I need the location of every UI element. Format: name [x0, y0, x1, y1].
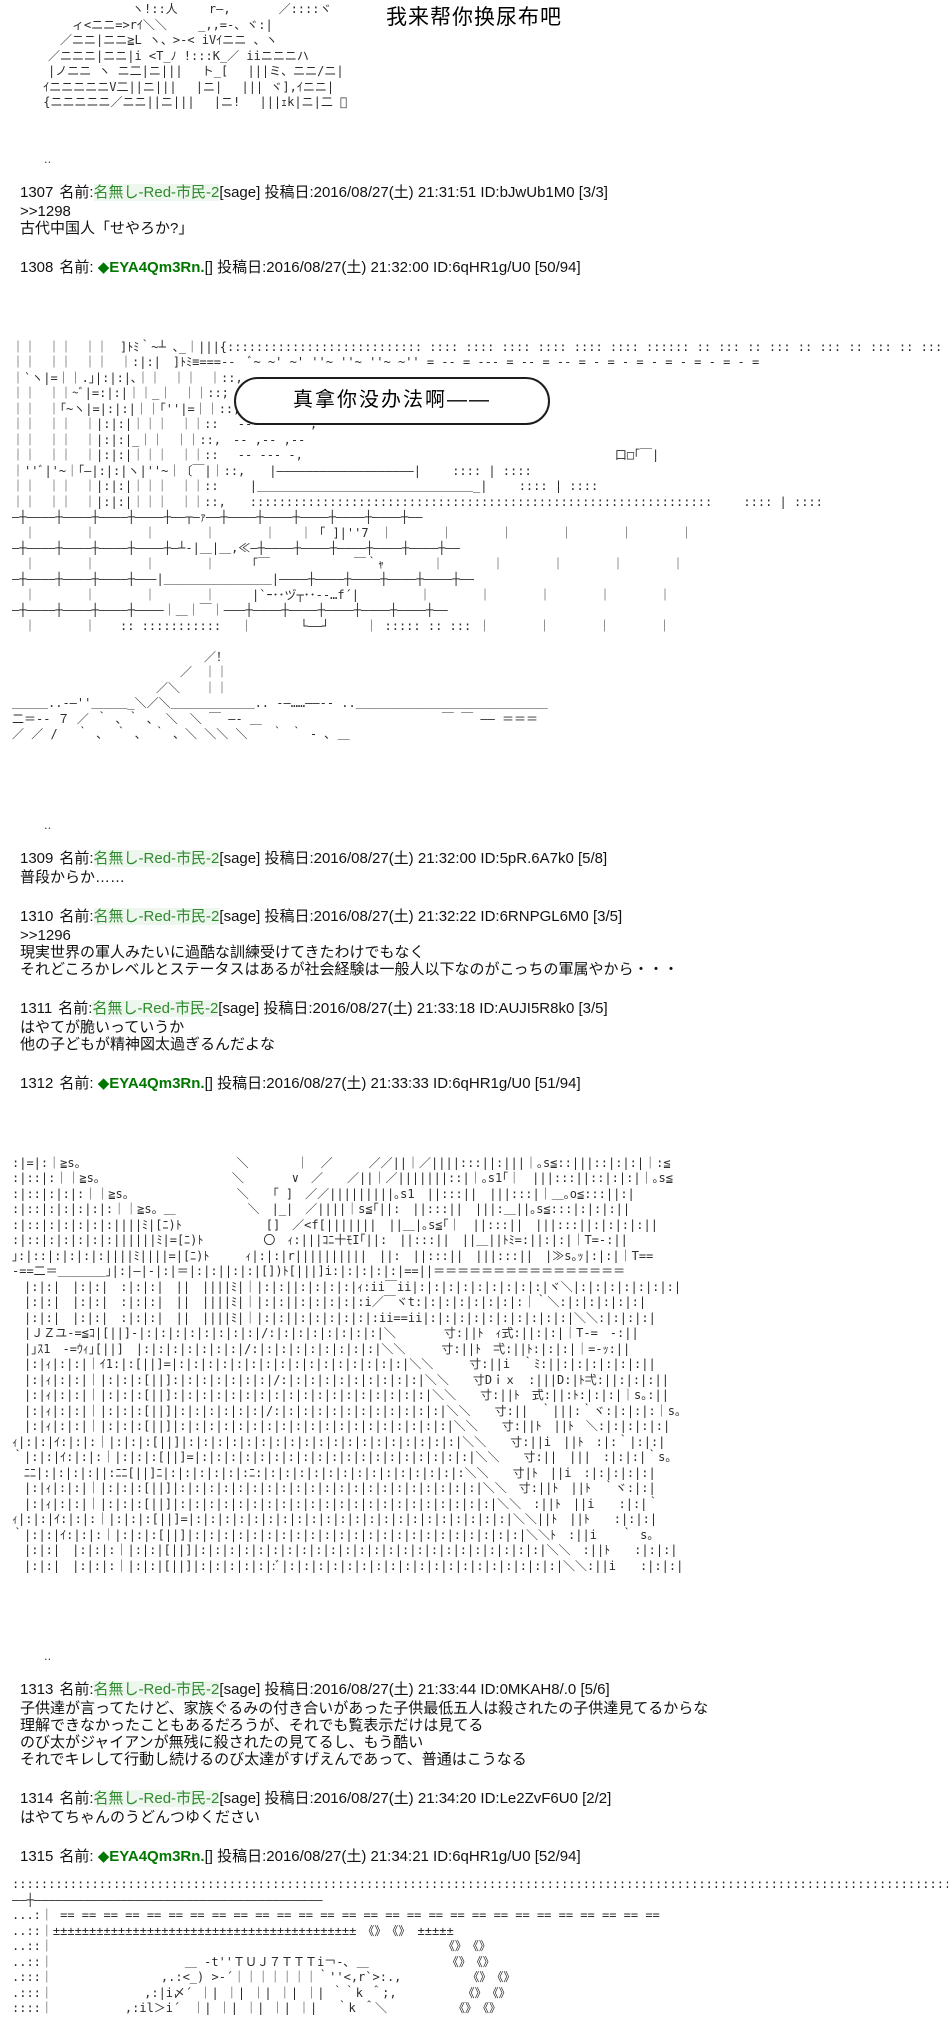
post-header: 1311名前:名無し-Red-市民-2[sage] 投稿日:2016/08/27… — [20, 1000, 948, 1017]
name-label: 名前: — [59, 908, 93, 925]
post-body-line: のび太がジャイアンが無残に殺されたの見てるし、もう酷い — [20, 1734, 948, 1751]
post-number: 1312 — [20, 1075, 53, 1092]
post-header: 1313名前:名無し-Red-市民-2[sage] 投稿日:2016/08/27… — [20, 1681, 948, 1698]
post: 1315名前: ◆EYA4Qm3Rn.[] 投稿日:2016/08/27(土) … — [20, 1848, 948, 2017]
post-body-line: 理解できなかったこともあるだろうが、それでも覧表示だけは見てる — [20, 1717, 948, 1734]
mail-field: [sage] — [219, 184, 260, 201]
post-header: 1314名前:名無し-Red-市民-2[sage] 投稿日:2016/08/27… — [20, 1790, 948, 1807]
post-body-line: はやてが脆いっていうか — [20, 1019, 948, 1036]
post-body: はやてちゃんのうどんつゆください — [20, 1809, 948, 1826]
post-number: 1314 — [20, 1790, 53, 1807]
separator-dots: .. — [44, 1648, 948, 1663]
mail-field: [sage] — [219, 1681, 260, 1698]
post-number: 1309 — [20, 850, 53, 867]
name-label: 名前: — [59, 1681, 93, 1698]
post-body-line: >>1296 — [20, 927, 948, 944]
post: 1312名前: ◆EYA4Qm3Rn.[] 投稿日:2016/08/27(土) … — [20, 1075, 948, 1575]
post-body: 普段からか…… — [20, 869, 948, 886]
post-body-line: 現実世界の軍人みたいに過酷な訓練受けてきたわけでもなく — [20, 944, 948, 961]
post-date-id: 投稿日:2016/08/27(土) 21:32:22 ID:6RNPGL6M0 … — [260, 908, 622, 925]
post: 1308名前: ◆EYA4Qm3Rn.[] 投稿日:2016/08/27(土) … — [20, 259, 948, 743]
post-header: 1309名前:名無し-Red-市民-2[sage] 投稿日:2016/08/27… — [20, 850, 948, 867]
post-date-id: 投稿日:2016/08/27(土) 21:31:51 ID:bJwUb1M0 [… — [260, 184, 608, 201]
post-number: 1307 — [20, 184, 53, 201]
name-label: 名前: — [59, 259, 97, 276]
mail-field: [] — [205, 1075, 213, 1092]
post-body-line: 他の子どもが精神図太過ぎるんだよな — [20, 1036, 948, 1053]
post-date-id: 投稿日:2016/08/27(土) 21:33:33 ID:6qHR1g/U0 … — [213, 1075, 581, 1092]
post-body: >>1296現実世界の軍人みたいに過酷な訓練受けてきたわけでもなくそれどころかレ… — [20, 927, 948, 978]
post-number: 1311 — [20, 1000, 52, 1017]
thread-title: 我来帮你换尿布吧 — [0, 1, 948, 31]
separator-dots: .. — [44, 151, 948, 166]
poster-name: ◆EYA4Qm3Rn. — [98, 259, 205, 276]
poster-name: ◆EYA4Qm3Rn. — [98, 1075, 205, 1092]
post: 1313名前:名無し-Red-市民-2[sage] 投稿日:2016/08/27… — [20, 1681, 948, 1768]
name-label: 名前: — [58, 1000, 92, 1017]
poster-name: 名無し-Red-市民-2 — [94, 184, 220, 201]
poster-name: 名無し-Red-市民-2 — [94, 1790, 220, 1807]
post-header: 1307名前:名無し-Red-市民-2[sage] 投稿日:2016/08/27… — [20, 184, 948, 201]
post: 1307名前:名無し-Red-市民-2[sage] 投稿日:2016/08/27… — [20, 184, 948, 237]
post-list: .. 1307名前:名無し-Red-市民-2[sage] 投稿日:2016/08… — [10, 151, 948, 2017]
post-header: 1315名前: ◆EYA4Qm3Rn.[] 投稿日:2016/08/27(土) … — [20, 1848, 948, 1865]
mail-field: [] — [205, 1848, 213, 1865]
post-body-line: 子供達が言ってたけど、家族ぐるみの付き合いがあった子供最低五人は殺されたの子供達… — [20, 1700, 948, 1717]
separator-dots: .. — [44, 817, 948, 832]
poster-name: 名無し-Red-市民-2 — [94, 1681, 220, 1698]
post-number: 1313 — [20, 1681, 53, 1698]
mail-field: [sage] — [219, 850, 260, 867]
poster-name: 名無し-Red-市民-2 — [94, 908, 220, 925]
poster-name: ◆EYA4Qm3Rn. — [98, 1848, 205, 1865]
post-body: 子供達が言ってたけど、家族ぐるみの付き合いがあった子供最低五人は殺されたの子供達… — [20, 1700, 948, 1768]
post-number: 1315 — [20, 1848, 53, 1865]
ascii-art-wrap: ｜｜ ｜｜ ｜｜ ]ﾄﾐ｀~┴ ､_｜|||{:::::::::::::::::… — [12, 340, 948, 743]
ascii-art-wrap: ::::::::::::::::::::::::::::::::::::::::… — [12, 1877, 948, 2017]
name-label: 名前: — [59, 1848, 97, 1865]
post: 1311名前:名無し-Red-市民-2[sage] 投稿日:2016/08/27… — [20, 1000, 948, 1053]
post-body: >>1298古代中国人「せやろか?」 — [20, 203, 948, 237]
post-body-line: それどころかレベルとステータスはあるが社会経験は一般人以下なのがこっちの軍属やか… — [20, 961, 948, 978]
post: 1310名前:名無し-Red-市民-2[sage] 投稿日:2016/08/27… — [20, 908, 948, 978]
post-body-line: はやてちゃんのうどんつゆください — [20, 1809, 948, 1826]
post-header: 1308名前: ◆EYA4Qm3Rn.[] 投稿日:2016/08/27(土) … — [20, 259, 948, 276]
mail-field: [sage] — [219, 1790, 260, 1807]
post-date-id: 投稿日:2016/08/27(土) 21:33:44 ID:0MKAH8/.0 … — [260, 1681, 609, 1698]
post-body-line: それでキレして行動し続けるのび太達がすげえんであって、普通はこうなる — [20, 1751, 948, 1768]
mail-field: [sage] — [219, 908, 260, 925]
post-date-id: 投稿日:2016/08/27(土) 21:34:20 ID:Le2ZvF6U0 … — [260, 1790, 611, 1807]
post-header: 1312名前: ◆EYA4Qm3Rn.[] 投稿日:2016/08/27(土) … — [20, 1075, 948, 1092]
ascii-art: :|=|:｜≧s。 ＼ ｜ ／ ／／||｜／||||:::||:|||｜｡s≦:… — [12, 1156, 948, 1575]
name-label: 名前: — [59, 1790, 93, 1807]
poster-name: 名無し-Red-市民-2 — [94, 850, 220, 867]
name-label: 名前: — [59, 850, 93, 867]
post-date-id: 投稿日:2016/08/27(土) 21:34:21 ID:6qHR1g/U0 … — [213, 1848, 581, 1865]
poster-name: 名無し-Red-市民-2 — [92, 1000, 218, 1017]
name-label: 名前: — [59, 1075, 97, 1092]
post-body-line: 普段からか…… — [20, 869, 948, 886]
post-date-id: 投稿日:2016/08/27(土) 21:32:00 ID:6qHR1g/U0 … — [213, 259, 581, 276]
post-body-line: 古代中国人「せやろか?」 — [20, 220, 948, 237]
post-body: はやてが脆いっていうか他の子どもが精神図太過ぎるんだよな — [20, 1019, 948, 1053]
mail-field: [] — [205, 259, 213, 276]
post-body-line: >>1298 — [20, 203, 948, 220]
post-number: 1310 — [20, 908, 53, 925]
ascii-art: ::::::::::::::::::::::::::::::::::::::::… — [12, 1877, 948, 2017]
post-date-id: 投稿日:2016/08/27(土) 21:33:18 ID:AUJI5R8k0 … — [259, 1000, 608, 1017]
thread-page: 我来帮你换尿布吧 ヽ!::人 r―, ／::::ヾ ィ<ニニ=>rｲ＼＼ _,,… — [0, 0, 948, 2017]
name-label: 名前: — [59, 184, 93, 201]
post: 1309名前:名無し-Red-市民-2[sage] 投稿日:2016/08/27… — [20, 850, 948, 886]
speech-bubble: 真拿你没办法啊—— — [234, 377, 550, 425]
post-date-id: 投稿日:2016/08/27(土) 21:32:00 ID:5pR.6A7k0 … — [260, 850, 607, 867]
post-number: 1308 — [20, 259, 53, 276]
ascii-art-wrap: :|=|:｜≧s。 ＼ ｜ ／ ／／||｜／||||:::||:|||｜｡s≦:… — [12, 1156, 948, 1575]
post: 1314名前:名無し-Red-市民-2[sage] 投稿日:2016/08/27… — [20, 1790, 948, 1826]
post-header: 1310名前:名無し-Red-市民-2[sage] 投稿日:2016/08/27… — [20, 908, 948, 925]
mail-field: [sage] — [218, 1000, 259, 1017]
